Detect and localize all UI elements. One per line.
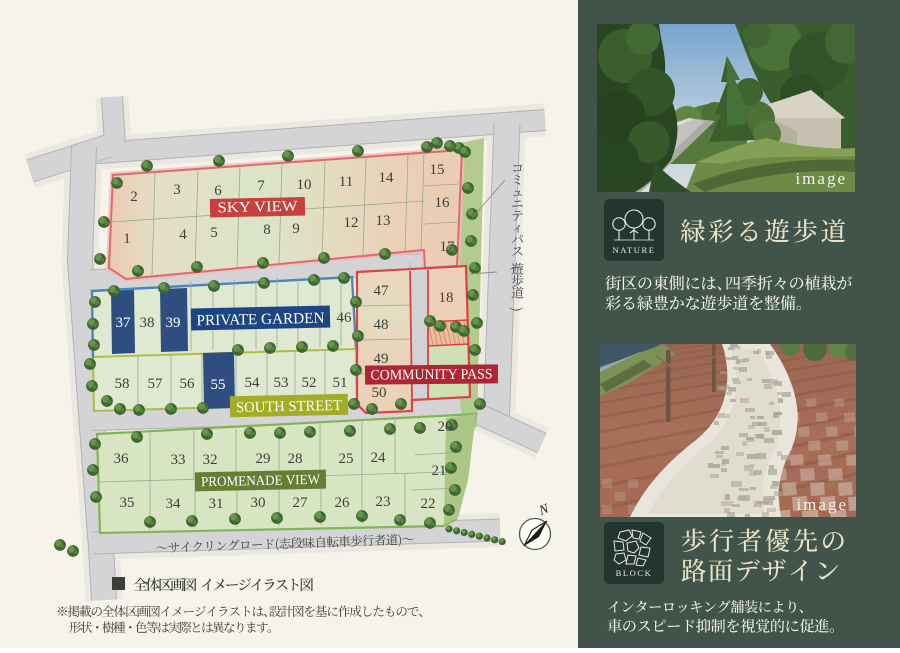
svg-text:55: 55 [211,377,226,393]
svg-text:33: 33 [171,452,186,468]
svg-text:SOUTH STREET: SOUTH STREET [236,398,342,416]
svg-text:50: 50 [372,385,387,401]
svg-text:SKY VIEW: SKY VIEW [217,199,298,217]
svg-text:54: 54 [245,375,261,391]
svg-text:3: 3 [173,182,181,198]
svg-text:49: 49 [374,351,389,367]
svg-text:10: 10 [297,177,312,193]
svg-text:14: 14 [379,170,395,186]
svg-text:12: 12 [344,215,359,231]
svg-text:BLOCK: BLOCK [616,568,653,578]
svg-text:37: 37 [116,315,132,331]
svg-text:PROMENADE VIEW: PROMENADE VIEW [201,473,321,491]
svg-text:25: 25 [339,451,354,467]
svg-text:17: 17 [440,239,456,255]
svg-text:15: 15 [430,162,445,178]
svg-text:22: 22 [421,496,436,512]
svg-text:23: 23 [376,494,391,510]
svg-text:30: 30 [251,495,266,511]
svg-text:4: 4 [179,227,187,243]
svg-text:1: 1 [123,231,131,247]
svg-text:47: 47 [374,283,390,299]
svg-text:image: image [795,169,847,188]
svg-text:38: 38 [140,315,155,331]
svg-text:26: 26 [335,495,351,511]
svg-text:7: 7 [257,178,265,194]
svg-text:39: 39 [166,315,181,331]
svg-text:35: 35 [120,495,135,511]
svg-text:11: 11 [339,174,353,190]
svg-text:52: 52 [302,375,317,391]
svg-text:2: 2 [130,189,138,205]
svg-text:16: 16 [435,195,451,211]
svg-text:18: 18 [439,290,454,306]
svg-text:image: image [796,495,848,514]
svg-text:36: 36 [114,451,130,467]
svg-text:8: 8 [263,222,271,238]
svg-text:NATURE: NATURE [613,245,656,255]
svg-text:28: 28 [288,451,303,467]
svg-text:13: 13 [376,213,391,229]
svg-text:9: 9 [292,221,300,237]
svg-text:31: 31 [209,496,224,512]
svg-text:5: 5 [210,225,218,241]
svg-text:6: 6 [214,183,222,199]
svg-text:27: 27 [293,495,309,511]
svg-text:51: 51 [333,375,348,391]
svg-text:57: 57 [148,376,164,392]
svg-text:24: 24 [371,450,387,466]
svg-text:46: 46 [337,310,353,326]
svg-text:COMMUNITY PASS: COMMUNITY PASS [370,366,492,383]
svg-text:29: 29 [256,451,271,467]
svg-text:32: 32 [203,452,218,468]
svg-text:56: 56 [180,376,196,392]
svg-text:53: 53 [274,375,289,391]
svg-text:48: 48 [374,317,389,333]
svg-text:58: 58 [115,376,130,392]
svg-text:20: 20 [438,419,453,435]
svg-text:21: 21 [432,463,447,479]
svg-text:PRIVATE GARDEN: PRIVATE GARDEN [196,310,324,330]
svg-text:34: 34 [166,496,182,512]
